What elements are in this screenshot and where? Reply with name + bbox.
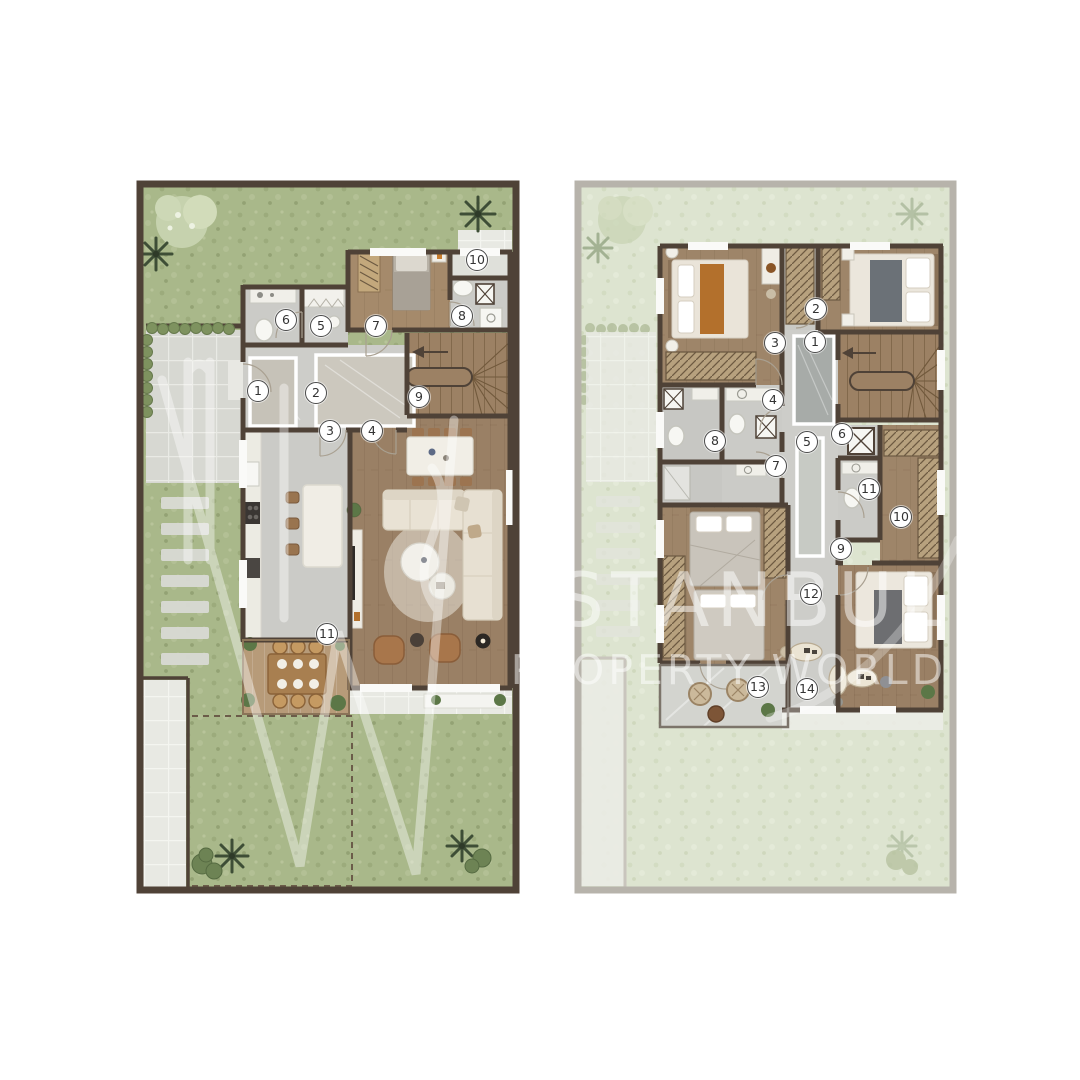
room-marker-ground-floor-4: 4 [361, 420, 383, 442]
faded-driveway [586, 332, 656, 482]
room-marker-first-floor-13: 13 [747, 676, 769, 698]
corridor-rug [797, 438, 823, 556]
room-marker-ground-floor-5: 5 [310, 315, 332, 337]
room-marker-ground-floor-10: 10 [466, 249, 488, 271]
room-marker-ground-floor-2: 2 [305, 382, 327, 404]
room-marker-first-floor-7: 7 [765, 455, 787, 477]
kitchen-island [303, 485, 342, 567]
room-marker-first-floor-5: 5 [796, 431, 818, 453]
room-marker-first-floor-3: 3 [764, 332, 786, 354]
room-marker-ground-floor-3: 3 [319, 420, 341, 442]
driveway [146, 330, 243, 483]
room-marker-first-floor-8: 8 [704, 430, 726, 452]
hall-rugs [250, 355, 414, 426]
room-marker-first-floor-10: 10 [890, 506, 912, 528]
floor-plans-image: ISTANBUL PROPERTY WORLD 1234567891011123… [0, 0, 1080, 1080]
room-marker-ground-floor-8: 8 [451, 305, 473, 327]
room-marker-ground-floor-1: 1 [247, 380, 269, 402]
room-marker-first-floor-9: 9 [830, 538, 852, 560]
side-path [458, 230, 512, 250]
room-marker-first-floor-12: 12 [800, 583, 822, 605]
room-marker-first-floor-1: 1 [804, 331, 826, 353]
faded-walkway [581, 660, 625, 886]
room-marker-first-floor-11: 11 [858, 478, 880, 500]
ground-floor-plan [140, 184, 516, 890]
room-marker-first-floor-2: 2 [805, 298, 827, 320]
room-marker-ground-floor-11: 11 [316, 623, 338, 645]
room-marker-ground-floor-7: 7 [365, 315, 387, 337]
room-marker-ground-floor-9: 9 [408, 386, 430, 408]
terrace-planter [424, 694, 506, 708]
floor-plans-drawing [0, 0, 1080, 1080]
room-marker-first-floor-4: 4 [762, 389, 784, 411]
first-floor-plan [578, 184, 953, 890]
room-marker-ground-floor-6: 6 [275, 309, 297, 331]
walkway [142, 680, 186, 888]
room-marker-first-floor-14: 14 [796, 678, 818, 700]
room-marker-first-floor-6: 6 [831, 423, 853, 445]
